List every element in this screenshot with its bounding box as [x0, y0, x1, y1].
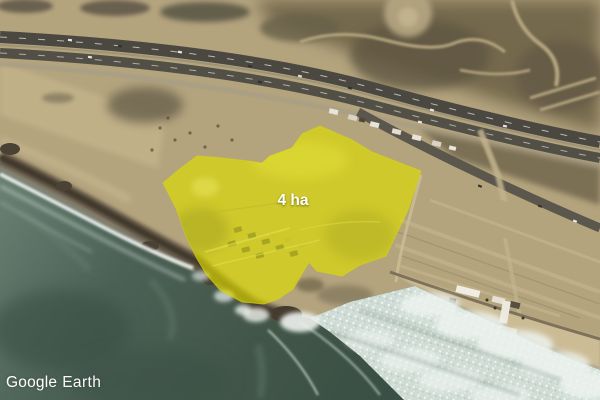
satellite-map-canvas[interactable]	[0, 0, 600, 400]
google-earth-viewport: 4 ha Google Earth	[0, 0, 600, 400]
